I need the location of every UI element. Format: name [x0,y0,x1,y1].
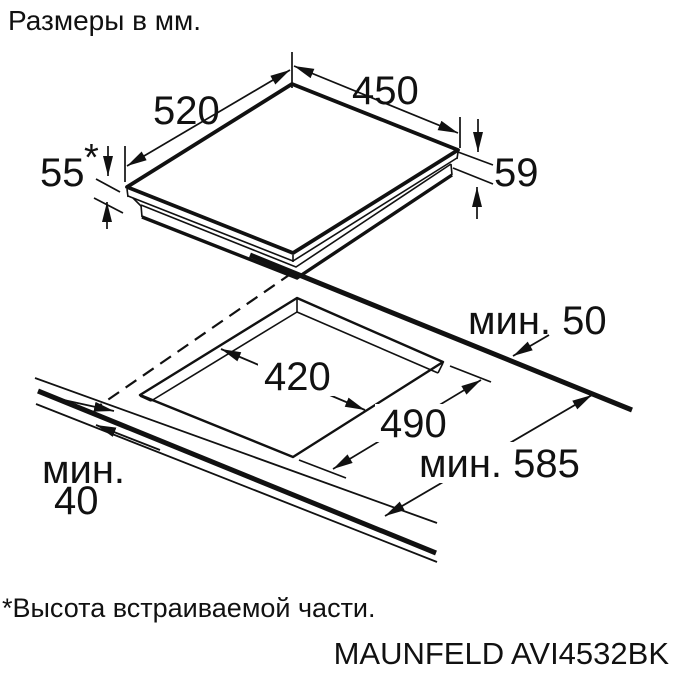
dim-450-label: 450 [352,69,419,113]
dim-420-label: 420 [264,355,331,399]
dim-min-40-value: 40 [54,479,99,523]
dim-59 [453,119,493,219]
model-name: MAUNFELD AVI4532BK [334,636,670,671]
footnote: *Высота встраиваемой части. [2,593,376,623]
hob-installation-diagram: Размеры в мм. 520 450 55 * 59 420 490 ми… [0,0,674,674]
dim-min-585-label: мин. 585 [419,442,580,486]
dim-520-label: 520 [153,89,220,133]
dim-min-50-label: мин. 50 [468,299,607,343]
dim-59-label: 59 [494,151,539,195]
dim-490-label: 490 [380,402,447,446]
page-title: Размеры в мм. [8,5,201,36]
dim-55-asterisk: * [84,137,99,179]
hob-drawing [94,52,493,278]
dim-55-label: 55 [40,151,85,195]
dimension-diagram-page: Размеры в мм. 520 450 55 * 59 420 490 ми… [0,0,674,674]
